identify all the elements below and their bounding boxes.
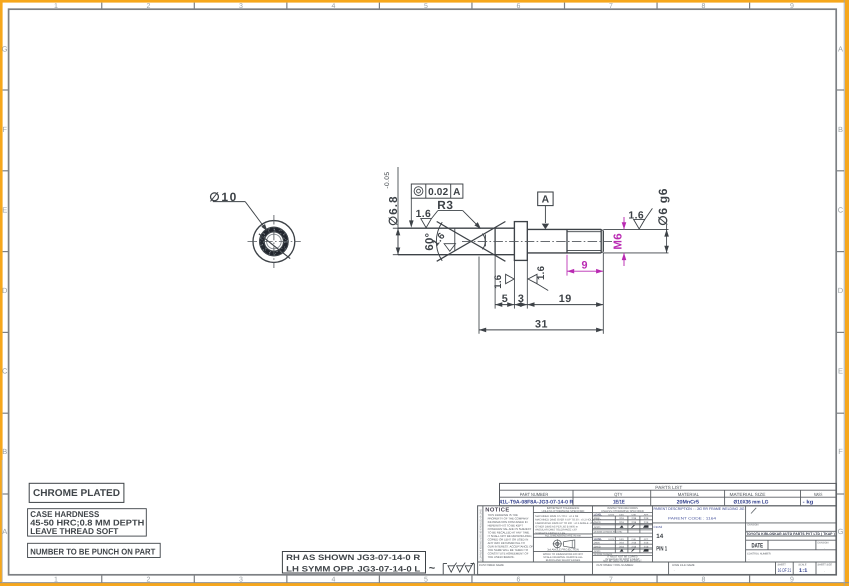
svg-text:F: F — [2, 125, 7, 134]
svg-text:9: 9 — [790, 3, 794, 10]
svg-text:APPD: APPD — [594, 526, 601, 529]
svg-text:PIN 1: PIN 1 — [656, 545, 667, 552]
svg-text:DATE: DATE — [752, 543, 764, 550]
svg-text:-0.05: -0.05 — [384, 172, 391, 189]
svg-text:DWN: DWN — [594, 517, 600, 520]
svg-text:C: C — [838, 206, 844, 215]
svg-text:A: A — [2, 527, 7, 536]
svg-text:∅6 g6: ∅6 g6 — [656, 188, 670, 226]
svg-text:5: 5 — [502, 293, 508, 305]
svg-text:2/18: 2/18 — [619, 545, 624, 548]
svg-text:DWN: DWN — [594, 542, 600, 545]
svg-text:QTY: QTY — [614, 492, 622, 497]
svg-text:41L-T9A-08F8A-JG3-07-14-0 R: 41L-T9A-08F8A-JG3-07-14-0 R — [499, 500, 573, 506]
svg-text:5: 5 — [424, 3, 428, 10]
svg-text:E: E — [838, 367, 843, 376]
svg-text:RH AS SHOWN JG3-07-14-0 R: RH AS SHOWN JG3-07-14-0 R — [286, 553, 420, 562]
svg-text:2/18: 2/18 — [619, 521, 624, 524]
svg-text:A: A — [838, 45, 843, 54]
svg-text:1.6: 1.6 — [493, 275, 504, 289]
svg-text:9: 9 — [790, 577, 794, 584]
svg-text:G: G — [838, 527, 844, 536]
svg-text:C1152: C1152 — [654, 525, 663, 529]
svg-text:G: G — [2, 45, 8, 54]
svg-text:.: . — [824, 569, 825, 573]
svg-text:.: . — [674, 568, 675, 572]
svg-text:PART NUMBER: PART NUMBER — [520, 492, 549, 497]
svg-text:1.6: 1.6 — [536, 266, 547, 280]
svg-text:19: 19 — [559, 293, 572, 305]
svg-text:2/18: 2/18 — [632, 545, 637, 548]
svg-text:DIVISION: DIVISION — [748, 524, 759, 527]
svg-text:C COPYRIGHT RESERVED NOT TO BE: C COPYRIGHT RESERVED NOT TO BE REPRODUCE… — [480, 509, 483, 561]
svg-text:DIVISION: DIVISION — [818, 542, 829, 545]
svg-text:B: B — [2, 447, 7, 456]
svg-text:3: 3 — [239, 577, 243, 584]
svg-text:R3: R3 — [437, 198, 453, 212]
svg-text:2/18: 2/18 — [632, 517, 637, 520]
svg-text:SHEET: SHEET — [778, 564, 787, 567]
svg-text:DATE: DATE — [609, 513, 615, 516]
svg-text:UNLESS OTHERWISE SPECIFIED: UNLESS OTHERWISE SPECIFIED — [542, 510, 585, 513]
svg-text:LEVEL: LEVEL — [594, 538, 603, 541]
svg-text:DATE: DATE — [609, 538, 615, 541]
svg-text:2/18: 2/18 — [632, 521, 637, 524]
svg-text:20MnCr5: 20MnCr5 — [677, 500, 700, 506]
svg-text:CUSTOMER TOOL NUMBER: CUSTOMER TOOL NUMBER — [596, 563, 633, 567]
svg-text:APPD: APPD — [594, 550, 601, 553]
svg-text:1: 1 — [54, 3, 58, 10]
svg-text:1E/1E: 1E/1E — [613, 500, 625, 506]
svg-text:CHROME PLATED: CHROME PLATED — [33, 488, 120, 499]
svg-text:APP: APP — [644, 538, 649, 541]
svg-text:D: D — [838, 286, 844, 295]
svg-text:ALL DIMENSIONS ARE IN mm: ALL DIMENSIONS ARE IN mm — [545, 534, 581, 537]
svg-text:7: 7 — [609, 3, 613, 10]
svg-text:DES: DES — [619, 513, 624, 516]
svg-text:SHEET SIZE: SHEET SIZE — [818, 564, 833, 567]
svg-text:DESIGN CHANGE RECORD: DESIGN CHANGE RECORD — [594, 531, 623, 534]
svg-text:.: . — [824, 546, 825, 550]
svg-text:2/18: 2/18 — [644, 545, 649, 548]
svg-text:~: ~ — [429, 563, 436, 575]
svg-text:DWG FILE NAME: DWG FILE NAME — [672, 563, 695, 567]
svg-text:1: 1 — [54, 577, 58, 584]
svg-text:2/18: 2/18 — [619, 542, 624, 545]
svg-text:6: 6 — [517, 577, 521, 584]
svg-text:1:1: 1:1 — [799, 568, 808, 574]
svg-text:MASS: MASS — [814, 492, 823, 497]
svg-text:CONTROL NUMBER: CONTROL NUMBER — [747, 552, 771, 555]
svg-text:2/18: 2/18 — [644, 517, 649, 520]
svg-text:8: 8 — [702, 3, 706, 10]
svg-text:31: 31 — [535, 319, 548, 331]
svg-text:- kg: - kg — [803, 500, 814, 506]
svg-text:MATERIAL SIZE: MATERIAL SIZE — [730, 492, 766, 497]
svg-text:∅6.8: ∅6.8 — [388, 195, 400, 225]
svg-text:LEVEL: LEVEL — [594, 513, 603, 516]
svg-text:CHKD: CHKD — [594, 521, 601, 524]
svg-text:4: 4 — [332, 3, 336, 10]
svg-text:MATERIAL: MATERIAL — [678, 492, 700, 497]
svg-text:3: 3 — [239, 3, 243, 10]
svg-text:D: D — [2, 286, 8, 295]
svg-text:2/18: 2/18 — [644, 542, 649, 545]
svg-text:2: 2 — [147, 577, 151, 584]
svg-text:2: 2 — [147, 3, 151, 10]
svg-text:9: 9 — [581, 259, 587, 271]
svg-text:2/18: 2/18 — [632, 542, 637, 545]
svg-text:DES: DES — [619, 538, 624, 541]
svg-text:Ø10X36 mm LG: Ø10X36 mm LG — [734, 500, 769, 506]
svg-text:.: . — [749, 557, 750, 561]
svg-text:14: 14 — [656, 533, 663, 540]
svg-text:6: 6 — [517, 3, 521, 10]
svg-text:CUSTOMER NAME: CUSTOMER NAME — [479, 563, 504, 567]
svg-text:LH SYMM OPP. JG3-07-14-0 L: LH SYMM OPP. JG3-07-14-0 L — [286, 565, 420, 574]
svg-text:16 OF 21: 16 OF 21 — [778, 568, 792, 574]
svg-text:5: 5 — [424, 577, 428, 584]
svg-text:CHK: CHK — [631, 513, 636, 516]
svg-text:0.02: 0.02 — [428, 187, 449, 198]
svg-text:C: C — [2, 367, 8, 376]
svg-text:CHK: CHK — [631, 538, 636, 541]
svg-text:E: E — [2, 206, 7, 215]
svg-text:A: A — [542, 195, 550, 206]
svg-text:M6: M6 — [613, 233, 625, 250]
svg-text:2/18: 2/18 — [644, 521, 649, 524]
svg-text:LEAVE THREAD SOFT: LEAVE THREAD SOFT — [30, 526, 119, 536]
svg-text:F: F — [838, 447, 843, 456]
svg-text:3: 3 — [518, 293, 524, 305]
svg-text:3rd ANGLE PROJECTION: 3rd ANGLE PROJECTION — [547, 549, 579, 552]
svg-text:CHKD: CHKD — [594, 545, 601, 548]
svg-text:PARENT DESCRIPTION : - JIG RR: PARENT DESCRIPTION : - JIG RR FRAME WELD… — [654, 507, 745, 511]
svg-text:B: B — [838, 125, 843, 134]
svg-text:THE USER HEREOF.: THE USER HEREOF. — [488, 555, 515, 559]
svg-text:NUMBER TO BE PUNCH ON PART: NUMBER TO BE PUNCH ON PART — [30, 547, 156, 557]
svg-text:8: 8 — [702, 577, 706, 584]
svg-text:SCALE: SCALE — [798, 564, 807, 567]
svg-text:4: 4 — [332, 577, 336, 584]
svg-text:APP: APP — [644, 513, 649, 516]
svg-text:2/18: 2/18 — [619, 517, 624, 520]
svg-text:PARTS LIST: PARTS LIST — [655, 485, 682, 490]
svg-text:A: A — [453, 187, 460, 198]
svg-text:7: 7 — [609, 577, 613, 584]
svg-text:PARENT CODE : 1164: PARENT CODE : 1164 — [668, 516, 716, 520]
